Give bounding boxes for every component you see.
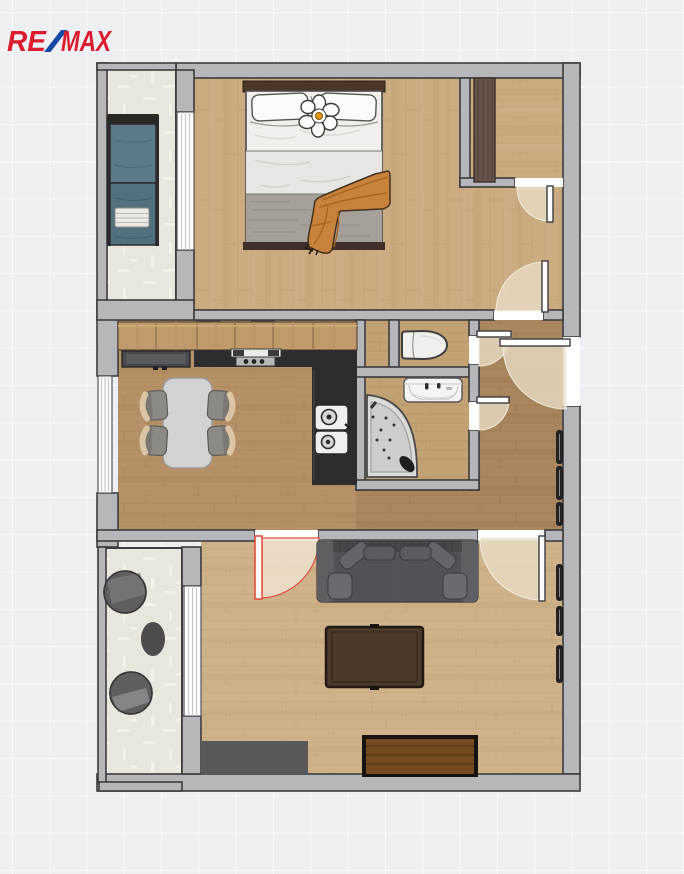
svg-text:RE: RE xyxy=(7,26,48,58)
svg-text:MAX: MAX xyxy=(61,26,112,58)
